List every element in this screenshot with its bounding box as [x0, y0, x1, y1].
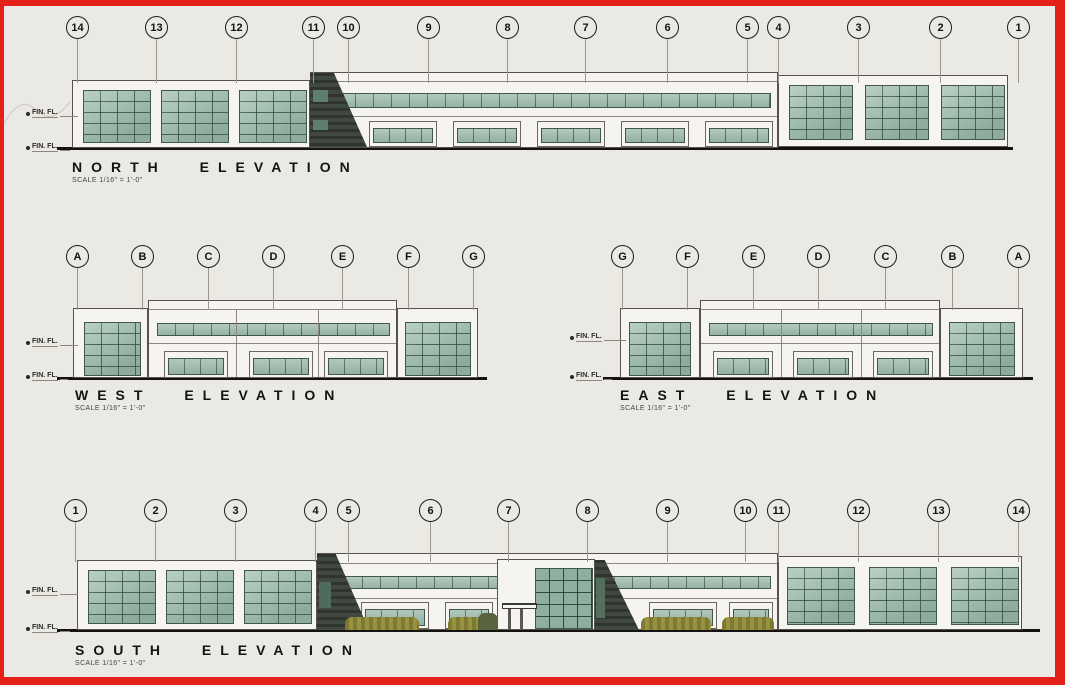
canopy-column — [508, 609, 511, 630]
grid-bubble-circle: B — [131, 245, 154, 268]
grid-leader-line — [507, 39, 508, 83]
grid-bubble-7: 7 — [574, 16, 597, 83]
grid-bubble-circle: 1 — [1007, 16, 1030, 39]
grid-leader-line — [858, 522, 859, 562]
grid-bubble-8: 8 — [496, 16, 519, 83]
grid-leader-line — [235, 522, 236, 562]
elevation-title: SOUTH ELEVATION — [75, 643, 361, 657]
grid-bubble-circle: 7 — [574, 16, 597, 39]
grid-bubble-circle: 8 — [496, 16, 519, 39]
grid-leader-line — [938, 522, 939, 562]
grid-bubble-circle: 6 — [419, 499, 442, 522]
scale-note: SCALE 1/16" = 1'-0" — [75, 660, 361, 668]
grid-bubble-circle: 13 — [145, 16, 168, 39]
grid-bubble-circle: 10 — [337, 16, 360, 39]
grid-leader-line — [667, 522, 668, 562]
grid-leader-line — [430, 522, 431, 562]
grid-bubble-circle: 3 — [847, 16, 870, 39]
grid-leader-line — [273, 268, 274, 310]
grid-leader-line — [408, 268, 409, 310]
grid-leader-line — [885, 268, 886, 310]
window-bay — [88, 570, 156, 624]
leader-line — [60, 631, 70, 632]
grid-bubble-3: 3 — [847, 16, 870, 83]
grid-bubble-circle: 10 — [734, 499, 757, 522]
grid-bubble-2: 2 — [929, 16, 952, 83]
entry-tower — [497, 559, 595, 630]
grid-bubble-circle: D — [262, 245, 285, 268]
south-elevation: 1234567891011121314 — [0, 0, 1065, 685]
shrub — [478, 613, 498, 630]
grid-bubble-3: 3 — [224, 499, 247, 562]
grid-bubble-D: D — [807, 245, 830, 310]
grid-bubble-circle: 12 — [225, 16, 248, 39]
grid-bubble-E: E — [331, 245, 354, 310]
grid-leader-line — [952, 268, 953, 310]
curtain-wall — [535, 568, 593, 629]
grid-leader-line — [155, 522, 156, 562]
grid-leader-line — [1018, 522, 1019, 562]
grid-bubble-circle: 4 — [304, 499, 327, 522]
grid-bubble-circle: 11 — [302, 16, 325, 39]
grid-bubble-10: 10 — [734, 499, 757, 562]
grid-bubble-circle: D — [807, 245, 830, 268]
grid-bubble-circle: 5 — [337, 499, 360, 522]
grid-leader-line — [428, 39, 429, 83]
leader-line — [60, 594, 78, 595]
grid-bubble-A: A — [66, 245, 89, 310]
grid-leader-line — [587, 522, 588, 562]
grid-bubble-circle: 7 — [497, 499, 520, 522]
grid-bubble-12: 12 — [225, 16, 248, 83]
grid-bubble-11: 11 — [302, 16, 325, 83]
window-bay — [787, 567, 855, 625]
window-bay — [951, 567, 1019, 625]
grid-bubble-B: B — [131, 245, 154, 310]
grid-leader-line — [1018, 268, 1019, 310]
fin-fl-marker: FIN. FL. — [26, 587, 78, 596]
grid-bubble-G: G — [611, 245, 634, 310]
grid-leader-line — [313, 39, 314, 83]
grid-bubble-circle: 1 — [64, 499, 87, 522]
grid-bubble-6: 6 — [419, 499, 442, 562]
grid-bubble-4: 4 — [767, 16, 790, 83]
grid-bubble-circle: E — [331, 245, 354, 268]
grid-bubble-circle: A — [1007, 245, 1030, 268]
grid-bubble-circle: 3 — [224, 499, 247, 522]
elevation-sheet: 1413121110987654321 — [0, 0, 1065, 685]
grid-bubble-9: 9 — [417, 16, 440, 83]
grid-leader-line — [585, 39, 586, 83]
grid-leader-line — [818, 268, 819, 310]
grid-leader-line — [75, 522, 76, 562]
south-title-block: SOUTH ELEVATION SCALE 1/16" = 1'-0" — [75, 643, 361, 668]
level-dot-icon — [26, 627, 30, 631]
fin-fl-label: FIN. FL. — [32, 624, 58, 633]
grid-leader-line — [348, 39, 349, 83]
grid-bubble-circle: A — [66, 245, 89, 268]
grid-bubble-circle: 2 — [144, 499, 167, 522]
grid-bubble-8: 8 — [576, 499, 599, 562]
grid-bubble-E: E — [742, 245, 765, 310]
grid-leader-line — [778, 39, 779, 83]
grid-bubble-5: 5 — [736, 16, 759, 83]
shaded-window — [596, 578, 605, 618]
grid-bubble-circle: C — [874, 245, 897, 268]
grid-bubble-C: C — [874, 245, 897, 310]
grid-leader-line — [622, 268, 623, 310]
grid-bubble-circle: C — [197, 245, 220, 268]
grid-bubble-2: 2 — [144, 499, 167, 562]
grid-bubble-circle: 9 — [417, 16, 440, 39]
grid-bubble-7: 7 — [497, 499, 520, 562]
grid-bubble-5: 5 — [337, 499, 360, 562]
grid-bubble-13: 13 — [145, 16, 168, 83]
grid-bubble-circle: 2 — [929, 16, 952, 39]
grid-leader-line — [1018, 39, 1019, 83]
south-left-block — [77, 560, 317, 630]
grid-bubble-circle: G — [462, 245, 485, 268]
grid-leader-line — [753, 268, 754, 310]
grid-leader-line — [667, 39, 668, 83]
window-bay — [244, 570, 312, 624]
grid-bubble-F: F — [397, 245, 420, 310]
grid-leader-line — [236, 39, 237, 83]
grid-bubble-14: 14 — [66, 16, 89, 83]
grid-bubble-circle: 11 — [767, 499, 790, 522]
grid-bubble-circle: 8 — [576, 499, 599, 522]
grid-leader-line — [315, 522, 316, 562]
grid-bubble-circle: 14 — [1007, 499, 1030, 522]
grid-leader-line — [858, 39, 859, 83]
grid-bubble-circle: B — [941, 245, 964, 268]
grid-leader-line — [342, 268, 343, 310]
grid-bubble-10: 10 — [337, 16, 360, 83]
grid-leader-line — [778, 522, 779, 562]
grid-leader-line — [348, 522, 349, 562]
grid-bubble-A: A — [1007, 245, 1030, 310]
grid-bubble-F: F — [676, 245, 699, 310]
shrub — [345, 617, 419, 630]
window-bay — [166, 570, 234, 624]
grid-leader-line — [473, 268, 474, 310]
grid-bubble-12: 12 — [847, 499, 870, 562]
grid-bubble-1: 1 — [1007, 16, 1030, 83]
grid-leader-line — [77, 268, 78, 310]
grid-bubble-4: 4 — [304, 499, 327, 562]
grid-bubble-circle: F — [676, 245, 699, 268]
grid-bubble-B: B — [941, 245, 964, 310]
grid-leader-line — [208, 268, 209, 310]
grid-bubble-circle: G — [611, 245, 634, 268]
grid-bubble-circle: F — [397, 245, 420, 268]
grid-bubble-circle: 12 — [847, 499, 870, 522]
grid-leader-line — [156, 39, 157, 83]
grid-leader-line — [745, 522, 746, 562]
window-bay — [869, 567, 937, 625]
grid-bubble-circle: 9 — [656, 499, 679, 522]
grid-bubble-C: C — [197, 245, 220, 310]
grid-bubble-13: 13 — [927, 499, 950, 562]
shrub — [641, 617, 711, 630]
grid-leader-line — [747, 39, 748, 83]
grid-bubble-circle: E — [742, 245, 765, 268]
fin-fl-label: FIN. FL. — [32, 587, 58, 596]
grid-bubble-9: 9 — [656, 499, 679, 562]
grid-leader-line — [940, 39, 941, 83]
grid-leader-line — [77, 39, 78, 83]
canopy-column — [520, 609, 523, 630]
grid-leader-line — [687, 268, 688, 310]
grid-bubble-circle: 14 — [66, 16, 89, 39]
grid-bubble-circle: 13 — [927, 499, 950, 522]
grid-bubble-6: 6 — [656, 16, 679, 83]
grid-bubble-11: 11 — [767, 499, 790, 562]
grid-leader-line — [142, 268, 143, 310]
grid-bubble-circle: 6 — [656, 16, 679, 39]
grid-bubble-D: D — [262, 245, 285, 310]
fin-fl-marker: FIN. FL. — [26, 624, 70, 633]
level-dot-icon — [26, 590, 30, 594]
grid-bubble-circle: 4 — [767, 16, 790, 39]
shrub — [722, 617, 774, 630]
grid-bubble-1: 1 — [64, 499, 87, 562]
grid-leader-line — [508, 522, 509, 562]
shaded-window — [319, 582, 331, 608]
grid-bubble-circle: 5 — [736, 16, 759, 39]
grid-bubble-G: G — [462, 245, 485, 310]
south-right-block — [778, 556, 1022, 630]
grid-bubble-14: 14 — [1007, 499, 1030, 562]
